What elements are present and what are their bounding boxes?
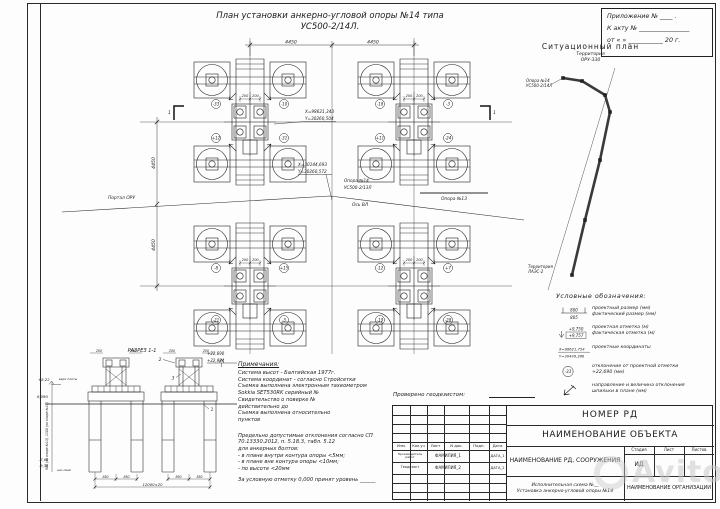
- coord-callout1-x: X=98621,343: [304, 109, 334, 114]
- legend-item-deviation: -33 отклонение от проектной отметки +22,…: [556, 364, 714, 379]
- note-line: действительно до: [238, 404, 390, 411]
- note-line: За условную отметку 0,000 принят уровень…: [238, 477, 390, 484]
- neighbor-support-label: Опора №13: [441, 196, 467, 202]
- legend-text: +22,690 (мм): [592, 370, 678, 376]
- drawing-title-line2: УС500-2/14Л.: [160, 22, 500, 32]
- section-200-dim: 200: [169, 349, 175, 353]
- deviation-value: -12: [377, 266, 384, 271]
- support-label-line2: УС500-2/13Л: [344, 185, 372, 190]
- callout-2: 2: [159, 357, 162, 363]
- legend-title: Условные обозначения:: [556, 292, 714, 300]
- notes-title: Примечания:: [238, 361, 390, 368]
- watermark-text: Avito: [632, 455, 720, 490]
- note-line: - в плане внутри контура опоры <5мм;: [238, 453, 390, 460]
- tb-col-ndok: N док.: [444, 442, 469, 450]
- note-line: - в плане вне контура опоры <10мм;: [238, 459, 390, 466]
- deviation-value: -8: [214, 266, 218, 271]
- note-line: для анкерных болтов:: [238, 446, 390, 453]
- coord-callout2-x: X=30144,693: [297, 162, 327, 167]
- watermark-ring-icon: [594, 456, 628, 490]
- deviation-value: -31: [281, 136, 288, 141]
- coordinates-symbol-icon: X=98621,754 Y=30449,386: [556, 345, 592, 360]
- deviation-value: -10: [281, 102, 288, 107]
- span-dim-label: 4450: [151, 157, 157, 169]
- checked-by-label: Проверено геодезистом:: [393, 392, 465, 398]
- dim-total: 12000±20: [142, 482, 163, 487]
- situational-plan-map: Опора №14 УС500-2/14Л Территория ЛАЭС-2: [520, 62, 655, 302]
- watermark: Avito: [594, 455, 720, 490]
- route-nodes: [561, 76, 612, 277]
- deviation-value: -5: [282, 318, 286, 323]
- tb-col-izm: Изм.: [393, 442, 410, 450]
- tb-doc-number: НОМЕР РД: [506, 406, 714, 425]
- situational-territory1-line1: Территория: [523, 52, 658, 57]
- deviation-value: -24: [445, 136, 452, 141]
- legend-text: направление и величина отклонения: [592, 383, 685, 389]
- deviation-value: -28: [445, 318, 452, 323]
- portal-label: Портал ОРУ: [108, 195, 135, 201]
- note-line: Предельно допустимые отклонения согласно…: [238, 433, 390, 440]
- deviation-value: +7: [445, 266, 451, 271]
- legend-text: фактический размер (мм): [592, 312, 656, 318]
- section-view: РАЗРЕЗ 1-1 200 200 200: [35, 344, 245, 496]
- rotated-dim-label: 900 (по опоре №13), 1100 (по опоре №14): [45, 402, 49, 470]
- legend-coord-y: Y=30449,386: [559, 355, 585, 359]
- situational-plan-title: Ситуационный план: [523, 42, 658, 51]
- appendix-line1: Приложение № ____ .: [607, 13, 707, 20]
- tb-row2-role: Геодезист: [393, 462, 427, 474]
- deviation-value: -33: [213, 102, 220, 107]
- legend-text: отклонение от проектной отметки: [592, 364, 678, 370]
- deviation-value: +12: [212, 136, 221, 141]
- section-mark-label: 1: [493, 110, 496, 116]
- pile-bottom-label: низ свай: [57, 468, 71, 472]
- legend-coord-x: X=98621,754: [558, 348, 585, 352]
- drawing-title-line1: План установки анкерно-угловой опоры №14…: [160, 11, 500, 21]
- support-label-line1: Опора №14: [344, 178, 369, 183]
- note-line: пунктов: [238, 417, 390, 424]
- sit-territory2-line2: ЛАЭС-2: [527, 269, 544, 274]
- plan-view: 200 200 -33 -10 +12: [60, 36, 525, 360]
- coord-callout2-y: Y=30260,572: [298, 169, 327, 174]
- deviation-value: -21: [213, 318, 220, 323]
- elev-top-label: верх плиты: [59, 377, 78, 381]
- dim-850: 850: [175, 475, 181, 479]
- tb-row1-date: ДАТА_1: [489, 450, 506, 462]
- elev-left-top: +8,22: [38, 377, 50, 382]
- tb-row2-date: ДАТА_2: [489, 462, 506, 474]
- legend-text: фактическая отметка (м): [592, 331, 655, 337]
- callout-leaders: [274, 122, 336, 201]
- legend-deviation-value: -33: [565, 369, 572, 374]
- section-mark-label: 1: [168, 110, 171, 116]
- note-line: Съемка выполнена относительно: [238, 410, 390, 417]
- tb-row2-name: ФАМИЛИЯ_2: [427, 462, 469, 474]
- sit-support-line2: УС500-2/14Л: [526, 83, 552, 88]
- appendix-line2: К акту № ________________: [607, 25, 707, 32]
- tb-row1-name: ФАМИЛИЯ_1: [427, 450, 469, 462]
- notes-block: Примечания: Система высот - Балтийская 1…: [238, 361, 390, 484]
- legend-text: проектная отметка (м): [592, 325, 655, 331]
- tb-col-podp: Подп.: [469, 442, 489, 450]
- tb-scheme-line1: Исполнительная схема №__: [531, 483, 598, 488]
- legend-dim-top: 800: [570, 308, 578, 313]
- note-line: Система координат - согласно Стройсетки: [238, 377, 390, 384]
- vl-axis-label: Ось ВЛ: [352, 202, 369, 208]
- pile-foundation-elevation: [88, 358, 217, 472]
- dim-850: 850: [123, 475, 129, 479]
- direction-arrow-icon: [556, 383, 592, 398]
- dim-850: 850: [102, 475, 108, 479]
- tb-object-name: НАИМЕНОВАНИЕ ОБЪЕКТА: [506, 425, 714, 446]
- note-line: Свидетельство о поверке №: [238, 397, 390, 404]
- section-200-dim: 200: [130, 349, 136, 353]
- legend-elev-bottom: +9,757: [569, 333, 584, 338]
- deviation-value: +11: [376, 136, 384, 141]
- legend-text: проектные координаты: [592, 345, 651, 351]
- legend-text: шпильки в плане (мм): [592, 389, 685, 395]
- elevation-symbol-icon: +9,750 +9,757: [556, 325, 592, 341]
- left-elevations: +8,22 верх плиты 8,090 -7,80 -9,30 низ с…: [37, 377, 78, 472]
- elev-ground: 8,090: [37, 394, 48, 399]
- checked-by: Проверено геодезистом:: [393, 392, 535, 398]
- note-line: 70.13330.2012, п. 5.18.3, табл. 5.12: [238, 439, 390, 446]
- legend-item-coordinates: X=98621,754 Y=30449,386 проектные коорди…: [556, 345, 714, 360]
- tb-row1-role: Производитель работ: [393, 450, 427, 462]
- note-line: - по высоте <20мм: [238, 466, 390, 473]
- tb-col-koluch: Кол.уч: [410, 442, 427, 450]
- note-line: Sokkia SET530RK серийный №: [238, 390, 390, 397]
- deviation-value: -19: [377, 318, 384, 323]
- section-200-dim: 200: [96, 349, 102, 353]
- legend-item-direction: направление и величина отклонения шпильк…: [556, 383, 714, 398]
- tb-col-data: Дата: [489, 442, 506, 450]
- top-elevation-callout: +22,690 +22,984: [207, 351, 237, 367]
- note-line: Съемка выполнена электронным тахеометром: [238, 383, 390, 390]
- tb-col-list: Лист: [427, 442, 444, 450]
- part-callouts: 2 3 1: [159, 357, 214, 413]
- coord-callout1-y: Y=30260,504: [305, 116, 334, 121]
- legend-text: проектный размер (мм): [592, 306, 656, 312]
- callout-3: 3: [172, 376, 175, 382]
- boundary-line: [548, 68, 615, 290]
- elev-actual: +22,984: [207, 358, 225, 363]
- note-line: Система высот - Балтийская 1977г.: [238, 370, 390, 377]
- span-dim-label: 4450: [367, 40, 379, 46]
- deviation-value: +15: [280, 266, 289, 271]
- deviation-circle-icon: -33: [556, 364, 592, 379]
- span-dim-label: 4450: [151, 239, 157, 251]
- legend-item-elevation: +9,750 +9,757 проектная отметка (м) факт…: [556, 325, 714, 341]
- legend-dim-bottom: 805: [570, 315, 578, 320]
- legend-elev-top: +9,750: [569, 327, 584, 332]
- plan-dimension-left: [155, 117, 159, 291]
- callout-1: 1: [211, 407, 214, 413]
- legend: Условные обозначения: 800 805 проектный …: [556, 292, 714, 402]
- drawing-sheet: План установки анкерно-угловой опоры №14…: [0, 0, 720, 509]
- elev-design: +22,690: [207, 351, 225, 356]
- checked-by-blank: [489, 392, 535, 398]
- legend-item-dimension: 800 805 проектный размер (мм) фактически…: [556, 306, 714, 321]
- dim-850: 850: [196, 475, 202, 479]
- situational-labels: Опора №14 УС500-2/14Л Территория ЛАЭС-2: [526, 78, 553, 274]
- tb-sheets-header: Листов: [684, 446, 714, 454]
- dimension-symbol-icon: 800 805: [556, 306, 592, 321]
- support-leader: [552, 78, 563, 84]
- tb-stage-header: Стадия: [624, 446, 654, 454]
- span-dim-label: 4450: [285, 40, 297, 46]
- deviation-value: -18: [377, 102, 384, 107]
- deviation-value: -3: [446, 102, 450, 107]
- tb-sheet-header: Лист: [654, 446, 684, 454]
- coordinate-callouts: X=98621,343 Y=30260,504 X=30144,693 Y=30…: [108, 109, 467, 208]
